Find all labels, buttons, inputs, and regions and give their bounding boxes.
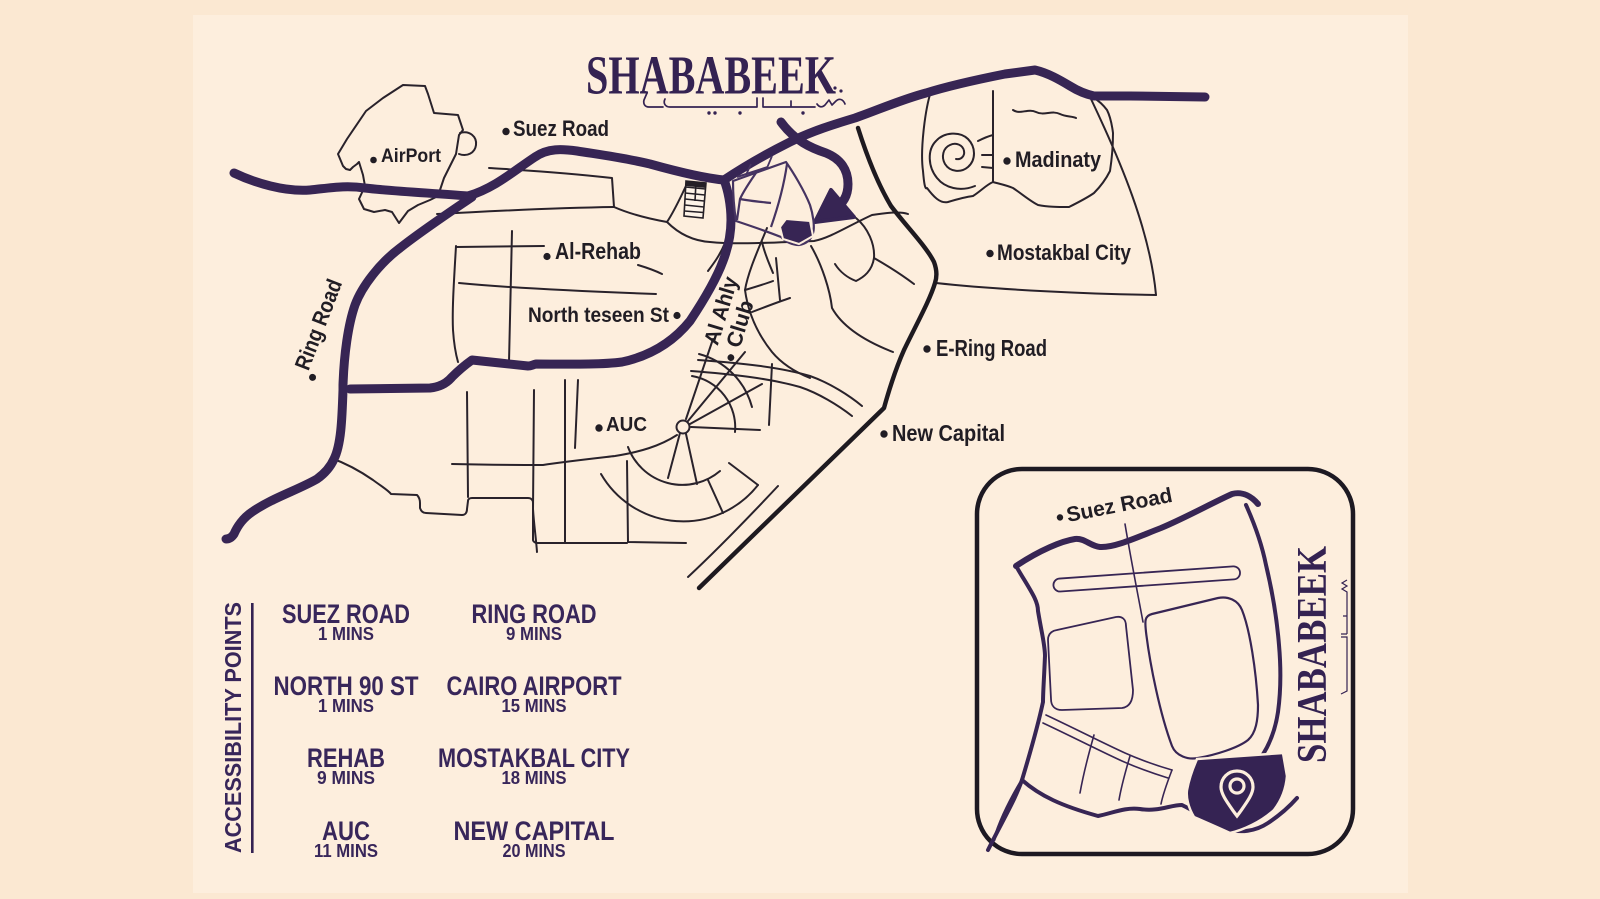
svg-text:Madinaty: Madinaty bbox=[1015, 147, 1102, 172]
svg-text:20 MINS: 20 MINS bbox=[503, 840, 566, 861]
svg-text:E-Ring Road: E-Ring Road bbox=[936, 335, 1047, 361]
svg-text:AirPort: AirPort bbox=[381, 146, 442, 167]
svg-text:1 MINS: 1 MINS bbox=[318, 623, 374, 644]
svg-text:15 MINS: 15 MINS bbox=[502, 695, 567, 716]
svg-text:New Capital: New Capital bbox=[892, 420, 1005, 446]
svg-text:18 MINS: 18 MINS bbox=[502, 767, 567, 788]
svg-text:1 MINS: 1 MINS bbox=[318, 695, 374, 716]
svg-text:11 MINS: 11 MINS bbox=[314, 840, 378, 861]
svg-text:9 MINS: 9 MINS bbox=[317, 767, 375, 788]
svg-text:9 MINS: 9 MINS bbox=[506, 623, 562, 644]
svg-text:Mostakbal City: Mostakbal City bbox=[997, 240, 1132, 265]
svg-text:Suez Road: Suez Road bbox=[513, 116, 609, 141]
svg-text:AUC: AUC bbox=[606, 414, 647, 436]
svg-text:SHABABEEK: SHABABEEK bbox=[586, 45, 836, 106]
svg-text:ACCESSIBILITY POINTS: ACCESSIBILITY POINTS bbox=[220, 602, 246, 853]
svg-text:North teseen St: North teseen St bbox=[528, 303, 669, 327]
svg-text:Al-Rehab: Al-Rehab bbox=[555, 238, 641, 264]
svg-text:SHABABEEK: SHABABEEK bbox=[1290, 546, 1336, 763]
